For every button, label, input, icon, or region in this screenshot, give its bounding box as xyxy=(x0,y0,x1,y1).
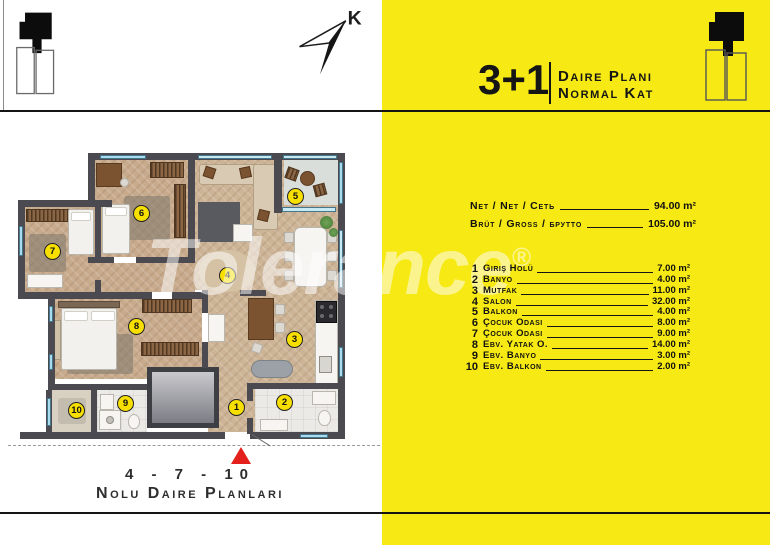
unit-type: 3+1 xyxy=(478,56,549,104)
wall xyxy=(247,383,345,389)
room-area: 14.00 m² xyxy=(652,340,690,350)
caption-title: Nolu Daire Planları xyxy=(0,485,380,503)
room-number: 7 xyxy=(456,329,478,339)
room-badge-9: 9 xyxy=(117,395,134,412)
net-area-row: Net / Net / Сеть 94.00 m² xyxy=(470,200,696,212)
room-number: 2 xyxy=(456,275,478,285)
room6-pillow xyxy=(105,207,127,216)
room-number: 6 xyxy=(456,318,478,328)
room-number: 8 xyxy=(456,340,478,350)
property-dashed-line xyxy=(8,445,380,446)
dining-chair xyxy=(284,270,294,281)
wall xyxy=(20,292,152,299)
room-badge-4: 4 xyxy=(219,267,236,284)
net-area-label: Net / Net / Сеть xyxy=(470,200,555,212)
room-badge-7: 7 xyxy=(44,243,61,260)
leader-line xyxy=(547,326,654,327)
room-badge-6: 6 xyxy=(133,205,150,222)
plant xyxy=(320,216,333,229)
room8-bench xyxy=(54,320,61,360)
room-name: Ebv. Yatak O. xyxy=(483,340,548,350)
room6-chair xyxy=(120,178,129,187)
gross-area-row: Brüt / Gross / брутто 105.00 m² xyxy=(470,218,696,230)
bath9-shower-drain-icon xyxy=(106,416,114,424)
room-number: 1 xyxy=(456,264,478,274)
wall xyxy=(136,257,195,263)
plan-title-line2: Normal Kat xyxy=(558,85,654,102)
building-footprint-logo-icon xyxy=(14,8,60,100)
floor-corridor xyxy=(94,263,195,292)
stove-burners-icon xyxy=(320,305,324,309)
bath9-sink xyxy=(100,394,114,410)
room-number: 5 xyxy=(456,307,478,317)
room-row: 1Giriş Holü7.00 m² xyxy=(456,263,690,274)
leader-line xyxy=(552,348,648,349)
leader-line xyxy=(546,370,654,371)
room-badge-1: 1 xyxy=(228,399,245,416)
room-badge-5: 5 xyxy=(287,188,304,205)
dining-table xyxy=(294,227,327,287)
room-row: 3Mutfak11.00 m² xyxy=(456,285,690,296)
hall-cabinet xyxy=(208,314,225,342)
building-footprint-logo-icon xyxy=(702,10,754,104)
wall xyxy=(202,342,208,368)
salon-east-window xyxy=(339,230,343,288)
window xyxy=(339,162,343,204)
room-area: 3.00 m² xyxy=(657,351,690,361)
room8-window xyxy=(49,354,53,370)
kitchen-table xyxy=(248,298,274,340)
gross-area-value: 105.00 m² xyxy=(648,218,696,230)
room8-pillow xyxy=(91,311,115,321)
wall xyxy=(250,432,345,439)
dining-chair xyxy=(284,232,294,243)
room-badge-3: 3 xyxy=(286,331,303,348)
leader-line xyxy=(540,359,653,360)
leader-line xyxy=(517,283,654,284)
plan-title-line1: Daire Planı xyxy=(558,68,653,85)
room-area: 7.00 m² xyxy=(657,264,690,274)
dining-chair xyxy=(327,251,337,262)
bath9-toilet xyxy=(128,414,140,429)
elevator-shaft xyxy=(147,367,219,428)
plan-caption: 4 - 7 - 10 Nolu Daire Planları xyxy=(0,466,380,503)
bath2-sink xyxy=(260,419,288,431)
room-number: 10 xyxy=(456,362,478,372)
room7-window xyxy=(19,226,23,256)
wall xyxy=(202,290,208,313)
kitchen-chair xyxy=(275,322,285,333)
kitchen-sink xyxy=(319,356,332,373)
room8-wardrobe xyxy=(142,299,192,313)
room-name: Ebv. Balkon xyxy=(483,362,542,372)
balcony10-window xyxy=(47,398,51,426)
room-name: Balkon xyxy=(483,307,518,317)
dining-chair xyxy=(284,251,294,262)
leader-line xyxy=(560,209,649,210)
plant xyxy=(329,228,338,237)
wall xyxy=(48,384,147,390)
wall xyxy=(247,418,253,434)
wall xyxy=(91,390,97,432)
left-edge-line xyxy=(3,0,4,110)
room8-wardrobe xyxy=(141,342,199,356)
kitchen-window xyxy=(339,347,343,377)
room-name: Çocuk Odası xyxy=(483,318,543,328)
salon-cushion xyxy=(239,166,252,179)
room-name: Çocuk Odası xyxy=(483,329,543,339)
leader-line xyxy=(537,272,653,273)
header-divider xyxy=(549,62,551,104)
wall xyxy=(95,200,101,262)
leader-line xyxy=(521,294,648,295)
room-area: 11.00 m² xyxy=(653,286,691,296)
kitchen-chair xyxy=(275,304,285,315)
gross-area-label: Brüt / Gross / брутто xyxy=(470,218,582,230)
north-arrow-icon: K xyxy=(294,4,368,82)
bath2-tub xyxy=(312,391,336,405)
room-row: 2Banyo4.00 m² xyxy=(456,274,690,285)
room8-pillow xyxy=(64,311,88,321)
balcony5-table xyxy=(300,171,315,186)
room-area: 4.00 m² xyxy=(657,275,690,285)
net-area-value: 94.00 m² xyxy=(654,200,696,212)
floor-plan: 1 2 3 4 5 6 7 8 9 10 xyxy=(12,138,357,458)
brochure-page: { "header": { "unit": "3+1", "line1": "D… xyxy=(0,0,770,545)
compass-label: K xyxy=(348,8,362,30)
bath2-toilet xyxy=(318,410,331,426)
builder-logo xyxy=(702,10,754,109)
builder-logo xyxy=(14,8,60,105)
leader-line xyxy=(547,337,654,338)
room8-window xyxy=(49,306,53,322)
entrance-arrow-icon xyxy=(231,447,251,464)
room-number: 3 xyxy=(456,286,478,296)
room-row: 6Çocuk Odası8.00 m² xyxy=(456,317,690,328)
room7-desk xyxy=(27,274,63,288)
caption-unit-numbers: 4 - 7 - 10 xyxy=(0,466,380,483)
room-area: 2.00 m² xyxy=(657,362,690,372)
room-badge-10: 10 xyxy=(68,402,85,419)
room-row: 10Ebv. Balkon2.00 m² xyxy=(456,361,690,372)
balcony5-door-glass xyxy=(282,207,336,212)
glass-facade xyxy=(198,155,272,159)
room-row: 7Çocuk Odası9.00 m² xyxy=(456,328,690,339)
room-row: 9Ebv. Banyo3.00 m² xyxy=(456,350,690,361)
room-number: 4 xyxy=(456,297,478,307)
room-badge-8: 8 xyxy=(128,318,145,335)
wall xyxy=(247,389,253,401)
room-row: 5Balkon4.00 m² xyxy=(456,307,690,318)
wall xyxy=(88,257,114,263)
room8-headboard xyxy=(58,301,120,308)
window xyxy=(100,155,146,159)
room-name: Giriş Holü xyxy=(483,264,533,274)
room-number: 9 xyxy=(456,351,478,361)
room7-pillow xyxy=(71,212,91,221)
room-name: Salon xyxy=(483,297,512,307)
dining-chair xyxy=(327,270,337,281)
wall xyxy=(274,153,282,213)
bottom-rule-line xyxy=(0,512,770,514)
leader-line xyxy=(587,227,643,228)
wall xyxy=(88,153,95,207)
room-row: 8Ebv. Yatak O.14.00 m² xyxy=(456,339,690,350)
kitchen-stove xyxy=(316,301,337,323)
north-arrow: K xyxy=(294,4,368,87)
room6-desk xyxy=(96,163,122,187)
bath2-window xyxy=(300,434,328,438)
room6-dresser xyxy=(174,184,186,238)
room-area: 4.00 m² xyxy=(657,307,690,317)
room6-wardrobe xyxy=(150,162,184,178)
kitchen-bench xyxy=(251,360,293,378)
room-row: 4Salon32.00 m² xyxy=(456,296,690,307)
room-area: 9.00 m² xyxy=(657,329,690,339)
wall xyxy=(240,290,266,296)
room-area: 8.00 m² xyxy=(657,318,690,328)
room-list: 1Giriş Holü7.00 m² 2Banyo4.00 m² 3Mutfak… xyxy=(456,263,690,372)
room-badge-2: 2 xyxy=(276,394,293,411)
room-name: Mutfak xyxy=(483,286,517,296)
room-name: Ebv. Banyo xyxy=(483,351,536,361)
top-rule-line xyxy=(0,110,770,112)
salon-coffee-table xyxy=(233,224,253,242)
leader-line xyxy=(522,315,654,316)
room-name: Banyo xyxy=(483,275,513,285)
room-area: 32.00 m² xyxy=(652,297,690,307)
wall xyxy=(188,153,195,263)
balcony5-glass xyxy=(283,155,337,159)
leader-line xyxy=(516,305,648,306)
